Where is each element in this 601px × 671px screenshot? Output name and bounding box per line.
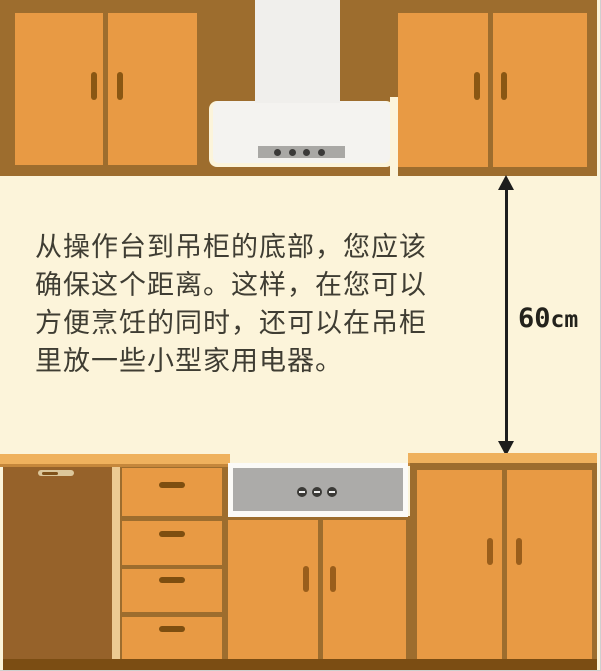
dishwasher-handle-icon (38, 470, 74, 476)
door-handle-icon (91, 72, 97, 100)
caption-line-2: 确保这个距离。这样，在您可以 (35, 267, 465, 305)
door-handle-icon (303, 566, 309, 592)
caption-line-3: 方便烹饪的同时，还可以在吊柜 (35, 305, 465, 343)
range-hood-chimney (255, 0, 340, 103)
measurement-label: 60cm (518, 303, 578, 334)
drawer-handle-icon (159, 482, 185, 488)
cooktop-knob-icon (297, 487, 307, 497)
cooktop-panel (228, 463, 408, 517)
kitchen-distance-infographic: 从操作台到吊柜的底部，您应该 确保这个距离。这样，在您可以 方便烹饪的同时，还可… (0, 0, 601, 671)
measurement-unit: cm (551, 307, 579, 333)
hood-button-icon (289, 149, 296, 156)
toekick (3, 659, 597, 670)
drawer-handle-icon (159, 531, 185, 537)
countertop-left (0, 454, 230, 467)
hood-button-icon (274, 149, 281, 156)
dishwasher-panel (3, 467, 112, 660)
cooktop-knob-icon (312, 487, 322, 497)
caption-line-1: 从操作台到吊柜的底部，您应该 (35, 229, 465, 267)
door-handle-icon (330, 566, 336, 592)
drawer-handle-icon (159, 577, 185, 583)
handle-mark (42, 472, 58, 475)
upper-left-door-1 (15, 13, 103, 165)
caption-line-4: 里放一些小型家用电器。 (35, 343, 465, 381)
drawer-3 (122, 569, 222, 612)
cooktop-knob-icon (327, 487, 337, 497)
upper-right-door-2 (493, 13, 587, 167)
door-handle-icon (501, 72, 507, 100)
cooktop-control-panel (233, 468, 403, 511)
drawer-4 (122, 617, 222, 660)
drawer-2 (122, 521, 222, 565)
caption-text: 从操作台到吊柜的底部，您应该 确保这个距离。这样，在您可以 方便烹饪的同时，还可… (35, 229, 465, 381)
door-handle-icon (117, 72, 123, 100)
door-handle-icon (487, 538, 493, 565)
measurement-arrow (505, 188, 508, 445)
measurement-value: 60 (518, 303, 551, 334)
hood-button-icon (318, 149, 325, 156)
hood-button-icon (303, 149, 310, 156)
drawer-handle-icon (159, 626, 185, 632)
door-handle-icon (516, 538, 522, 565)
hood-control-strip (258, 146, 345, 158)
door-handle-icon (474, 72, 480, 100)
drawer-1 (122, 468, 222, 516)
cabinet-divider-strip (112, 467, 120, 660)
